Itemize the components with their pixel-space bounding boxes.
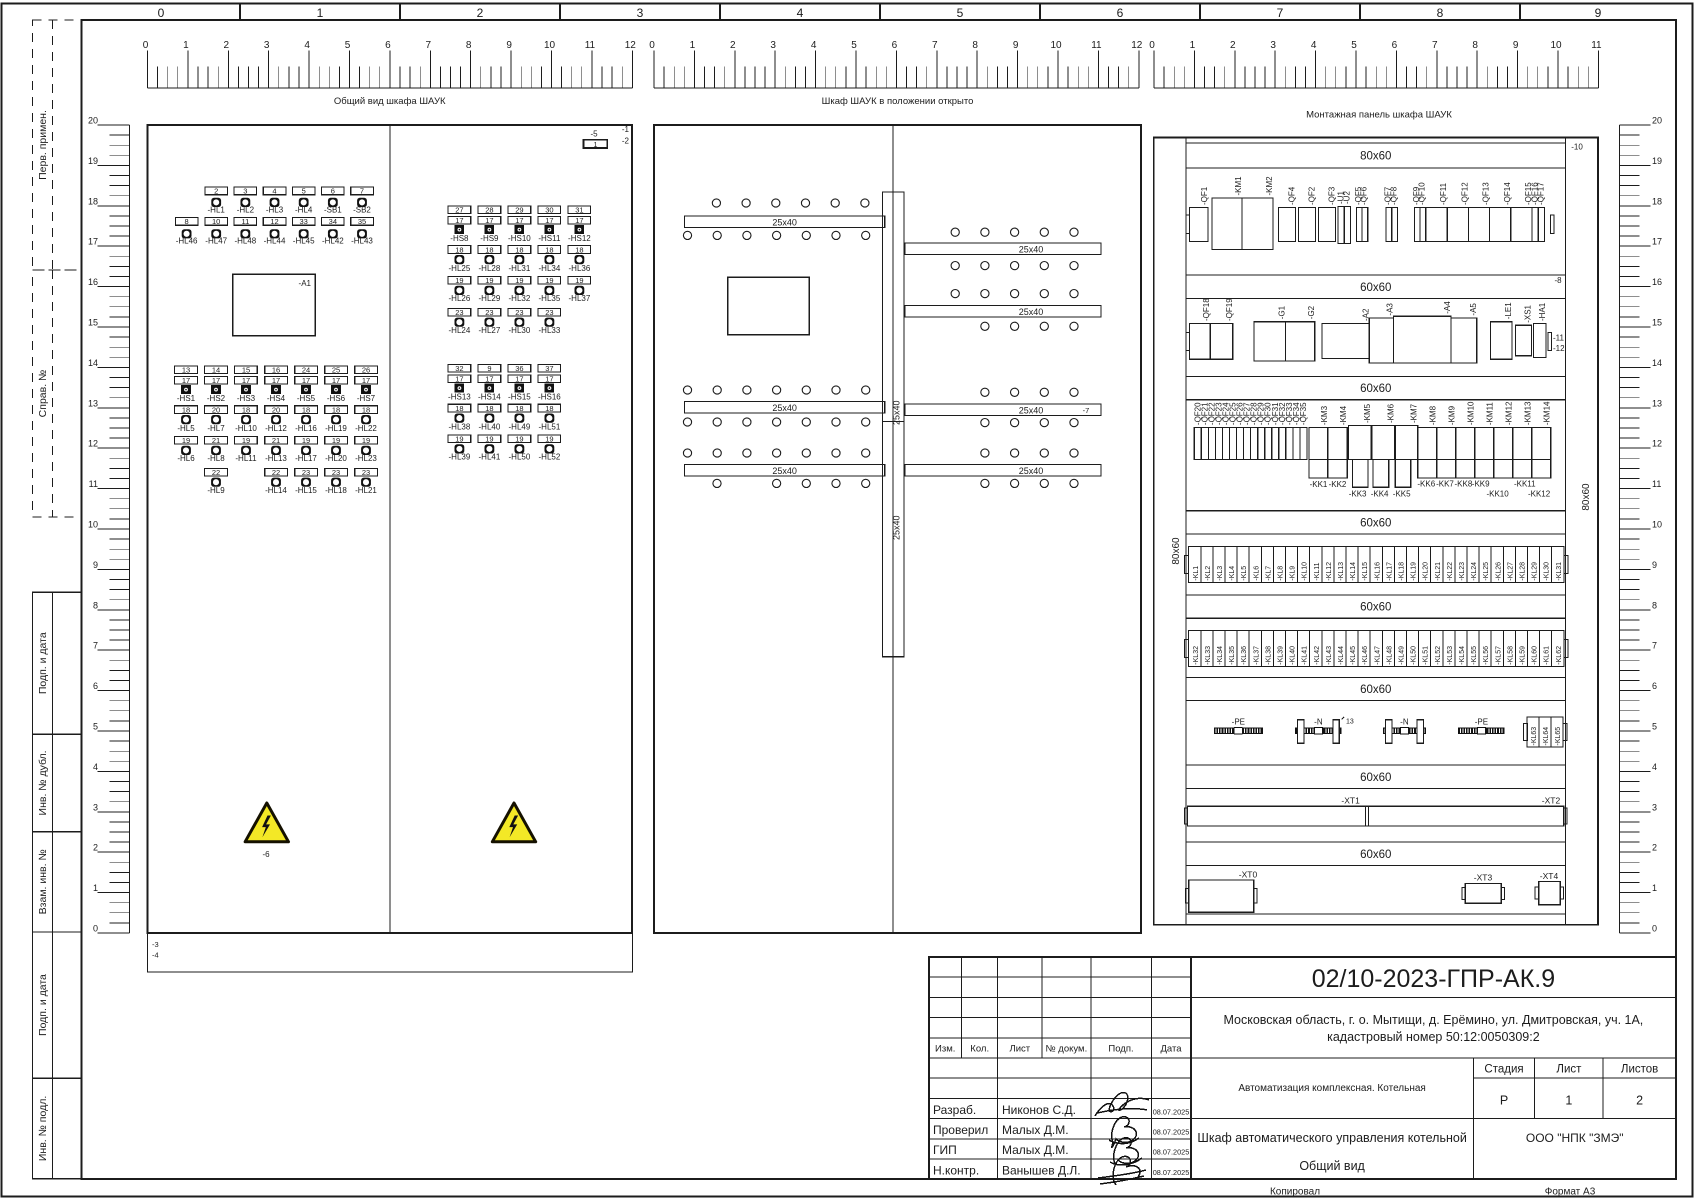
svg-text:1: 1 <box>1190 40 1196 51</box>
svg-text:-SB2: -SB2 <box>353 206 371 215</box>
svg-text:08.07.2025: 08.07.2025 <box>1153 1107 1190 1116</box>
svg-text:-KL30: -KL30 <box>1544 562 1551 581</box>
svg-text:-SB1: -SB1 <box>324 206 342 215</box>
svg-text:-HS16: -HS16 <box>538 393 561 402</box>
svg-text:7: 7 <box>93 641 98 651</box>
svg-text:-HL52: -HL52 <box>539 453 561 462</box>
svg-text:6: 6 <box>1117 6 1124 20</box>
svg-text:Копировал: Копировал <box>1270 1187 1320 1198</box>
svg-text:12: 12 <box>1131 40 1143 51</box>
svg-text:-KK1: -KK1 <box>1310 480 1328 489</box>
svg-text:14: 14 <box>212 366 220 375</box>
svg-text:15: 15 <box>242 366 250 375</box>
svg-text:-KK4: -KK4 <box>1371 490 1389 499</box>
svg-text:6: 6 <box>331 187 335 196</box>
svg-text:19: 19 <box>455 435 463 444</box>
svg-text:08.07.2025: 08.07.2025 <box>1153 1128 1190 1137</box>
svg-text:-KL4: -KL4 <box>1229 566 1236 581</box>
svg-text:-KL14: -KL14 <box>1350 562 1357 581</box>
svg-text:15: 15 <box>1652 318 1662 328</box>
svg-text:11: 11 <box>585 40 596 51</box>
svg-text:-KL25: -KL25 <box>1483 562 1490 581</box>
svg-text:19: 19 <box>302 436 310 445</box>
svg-text:13: 13 <box>182 366 190 375</box>
svg-text:-HS6: -HS6 <box>327 394 346 403</box>
svg-text:23: 23 <box>545 308 553 317</box>
svg-text:7: 7 <box>932 40 938 51</box>
svg-text:80х60: 80х60 <box>1581 483 1592 511</box>
svg-text:18: 18 <box>455 404 463 413</box>
svg-text:0: 0 <box>1149 40 1155 51</box>
svg-text:-HL10: -HL10 <box>235 424 257 433</box>
svg-text:-G1: -G1 <box>1277 305 1286 319</box>
svg-text:17: 17 <box>545 216 553 225</box>
svg-text:-KL43: -KL43 <box>1326 646 1333 665</box>
svg-text:№ докум.: № докум. <box>1045 1044 1087 1055</box>
svg-text:7: 7 <box>1432 40 1438 51</box>
svg-text:-HL21: -HL21 <box>355 486 377 495</box>
svg-text:-KM1: -KM1 <box>1234 176 1243 196</box>
svg-text:-HL49: -HL49 <box>509 423 531 432</box>
svg-text:19: 19 <box>515 276 523 285</box>
svg-text:Р: Р <box>1500 1094 1508 1108</box>
svg-text:0: 0 <box>1652 924 1657 934</box>
svg-text:5: 5 <box>93 722 98 732</box>
svg-text:-HS8: -HS8 <box>450 234 469 243</box>
svg-text:-QF17: -QF17 <box>1537 182 1546 205</box>
svg-text:Подп. и дата: Подп. и дата <box>37 974 49 1036</box>
svg-text:1: 1 <box>183 40 189 51</box>
svg-text:0: 0 <box>158 6 165 20</box>
svg-text:-HS15: -HS15 <box>508 393 531 402</box>
svg-text:-QF3: -QF3 <box>1328 186 1337 205</box>
svg-text:18: 18 <box>575 245 583 254</box>
svg-text:60х60: 60х60 <box>1360 383 1391 395</box>
svg-text:-KL40: -KL40 <box>1290 646 1297 665</box>
svg-text:80х60: 80х60 <box>1360 151 1391 163</box>
svg-text:18: 18 <box>485 404 493 413</box>
svg-text:10: 10 <box>88 520 98 530</box>
svg-text:18: 18 <box>515 404 523 413</box>
svg-text:-HS1: -HS1 <box>177 394 196 403</box>
svg-text:08.07.2025: 08.07.2025 <box>1153 1148 1190 1157</box>
svg-text:-G2: -G2 <box>1307 305 1316 319</box>
svg-text:9: 9 <box>506 40 512 51</box>
svg-text:-HL28: -HL28 <box>479 264 501 273</box>
svg-text:-QF10: -QF10 <box>1418 182 1427 205</box>
svg-text:9: 9 <box>1013 40 1019 51</box>
svg-text:Кол.: Кол. <box>970 1044 989 1055</box>
svg-text:-KL53: -KL53 <box>1447 646 1454 665</box>
svg-text:Инв. № подл.: Инв. № подл. <box>37 1096 49 1161</box>
svg-text:11: 11 <box>1652 479 1661 489</box>
svg-text:-KL42: -KL42 <box>1314 646 1321 665</box>
svg-text:19: 19 <box>242 436 250 445</box>
svg-text:-KK7: -KK7 <box>1436 480 1454 489</box>
svg-text:0: 0 <box>93 924 98 934</box>
svg-text:18: 18 <box>545 404 553 413</box>
svg-text:-KL19: -KL19 <box>1411 562 1418 581</box>
svg-text:2: 2 <box>214 187 218 196</box>
svg-text:25х40: 25х40 <box>772 218 797 228</box>
svg-text:19: 19 <box>88 156 98 166</box>
svg-text:-QF1: -QF1 <box>1200 186 1209 205</box>
svg-text:-KL3: -KL3 <box>1217 566 1224 581</box>
svg-text:3: 3 <box>637 6 644 20</box>
svg-text:Шкаф ШАУК в положении открыто: Шкаф ШАУК в положении открыто <box>822 96 974 107</box>
svg-text:17: 17 <box>455 375 463 384</box>
svg-text:-KL56: -KL56 <box>1483 646 1490 665</box>
svg-text:10: 10 <box>1652 520 1662 530</box>
svg-text:60х60: 60х60 <box>1360 602 1391 614</box>
svg-text:-KL10: -KL10 <box>1302 562 1309 581</box>
svg-text:-HS12: -HS12 <box>568 234 591 243</box>
svg-text:-KL51: -KL51 <box>1423 646 1430 665</box>
svg-text:-QF14: -QF14 <box>1503 182 1512 205</box>
svg-text:-HL27: -HL27 <box>479 326 501 335</box>
svg-text:4: 4 <box>1652 762 1657 772</box>
svg-text:Ванышев Д.Л.: Ванышев Д.Л. <box>1002 1163 1081 1177</box>
svg-text:-HL2: -HL2 <box>237 206 255 215</box>
svg-text:24: 24 <box>302 366 310 375</box>
svg-text:31: 31 <box>575 206 583 215</box>
svg-text:-KM13: -KM13 <box>1524 401 1533 425</box>
svg-text:-KL5: -KL5 <box>1241 566 1248 581</box>
svg-text:ООО "НПК "ЗМЭ": ООО "НПК "ЗМЭ" <box>1526 1131 1624 1145</box>
svg-text:25х40: 25х40 <box>892 515 902 540</box>
svg-text:25х40: 25х40 <box>772 403 797 413</box>
svg-text:19: 19 <box>545 276 553 285</box>
svg-text:3: 3 <box>770 40 776 51</box>
svg-text:-2: -2 <box>622 137 630 146</box>
svg-text:-KM6: -KM6 <box>1386 403 1395 423</box>
svg-text:25: 25 <box>332 366 340 375</box>
svg-text:12: 12 <box>625 40 637 51</box>
svg-text:-KL9: -KL9 <box>1290 566 1297 581</box>
svg-text:-HL17: -HL17 <box>295 454 317 463</box>
svg-text:Общий вид: Общий вид <box>1299 1159 1365 1173</box>
svg-text:17: 17 <box>302 376 310 385</box>
svg-text:-8: -8 <box>1554 276 1562 285</box>
svg-text:-KL49: -KL49 <box>1398 646 1405 665</box>
svg-text:9: 9 <box>93 560 98 570</box>
svg-text:-6: -6 <box>262 850 270 859</box>
svg-text:5: 5 <box>1351 40 1357 51</box>
svg-text:-HL34: -HL34 <box>539 264 561 273</box>
svg-text:-A1: -A1 <box>299 279 312 288</box>
svg-text:-KL33: -KL33 <box>1205 646 1212 665</box>
svg-text:-HL11: -HL11 <box>235 454 257 463</box>
svg-text:-KL29: -KL29 <box>1532 562 1539 581</box>
svg-text:-KL28: -KL28 <box>1519 562 1526 581</box>
svg-text:-KM14: -KM14 <box>1543 401 1552 425</box>
svg-text:кадастровый номер 50:12:005030: кадастровый номер 50:12:0050309:2 <box>1327 1030 1540 1044</box>
svg-text:60х60: 60х60 <box>1360 517 1391 529</box>
svg-text:-QF2: -QF2 <box>1308 186 1317 205</box>
svg-text:5: 5 <box>851 40 857 51</box>
svg-text:8: 8 <box>93 600 98 610</box>
svg-text:19: 19 <box>545 435 553 444</box>
svg-text:17: 17 <box>272 376 280 385</box>
svg-text:-KL47: -KL47 <box>1374 646 1381 665</box>
svg-text:20: 20 <box>88 116 98 126</box>
svg-text:-HL37: -HL37 <box>569 294 591 303</box>
svg-text:23: 23 <box>332 468 340 477</box>
svg-text:08.07.2025: 08.07.2025 <box>1153 1168 1190 1177</box>
svg-text:34: 34 <box>329 217 337 226</box>
svg-text:-HL13: -HL13 <box>265 454 287 463</box>
svg-text:7: 7 <box>1277 6 1284 20</box>
svg-text:-KK10: -KK10 <box>1486 490 1509 499</box>
svg-text:11: 11 <box>1591 40 1602 51</box>
svg-text:-HS13: -HS13 <box>448 393 471 402</box>
svg-text:Монтажная панель шкафа ШАУК: Монтажная панель шкафа ШАУК <box>1306 110 1452 121</box>
svg-text:-KL6: -KL6 <box>1253 566 1260 581</box>
svg-text:18: 18 <box>332 405 340 414</box>
svg-text:5: 5 <box>1652 722 1657 732</box>
svg-text:3: 3 <box>1652 802 1657 812</box>
svg-text:-HL12: -HL12 <box>265 424 287 433</box>
svg-text:14: 14 <box>88 358 98 368</box>
svg-text:1: 1 <box>93 883 98 893</box>
svg-text:19: 19 <box>362 436 370 445</box>
svg-text:-QF12: -QF12 <box>1460 182 1469 205</box>
svg-text:17: 17 <box>88 237 98 247</box>
svg-text:18: 18 <box>302 405 310 414</box>
svg-text:Подп. и дата: Подп. и дата <box>37 632 49 694</box>
svg-text:60х60: 60х60 <box>1360 772 1391 784</box>
svg-text:30: 30 <box>545 206 553 215</box>
svg-text:6: 6 <box>892 40 898 51</box>
svg-text:-HS10: -HS10 <box>508 234 531 243</box>
svg-text:-HL8: -HL8 <box>207 454 225 463</box>
svg-text:-HL38: -HL38 <box>449 423 471 432</box>
svg-text:-LE1: -LE1 <box>1504 302 1513 319</box>
svg-text:9: 9 <box>487 364 491 373</box>
svg-text:23: 23 <box>362 468 370 477</box>
svg-text:2: 2 <box>477 6 484 20</box>
svg-text:-HL16: -HL16 <box>295 424 317 433</box>
svg-text:12: 12 <box>88 439 98 449</box>
svg-text:11: 11 <box>89 479 98 489</box>
svg-text:6: 6 <box>385 40 391 51</box>
svg-text:7: 7 <box>426 40 432 51</box>
svg-text:-HL30: -HL30 <box>509 326 531 335</box>
svg-text:20: 20 <box>272 405 280 414</box>
svg-text:17: 17 <box>212 376 220 385</box>
svg-text:-KM8: -KM8 <box>1429 405 1438 425</box>
svg-text:4: 4 <box>304 40 310 51</box>
svg-text:4: 4 <box>1311 40 1317 51</box>
svg-text:-KK9: -KK9 <box>1472 480 1490 489</box>
svg-text:-KL52: -KL52 <box>1435 646 1442 665</box>
svg-text:-KM9: -KM9 <box>1448 405 1457 425</box>
svg-text:10: 10 <box>544 40 556 51</box>
svg-text:33: 33 <box>300 217 308 226</box>
svg-text:-HL51: -HL51 <box>539 423 561 432</box>
svg-text:-HL24: -HL24 <box>449 326 471 335</box>
svg-text:-QF6: -QF6 <box>1360 186 1369 205</box>
svg-text:-KK8: -KK8 <box>1455 480 1473 489</box>
svg-text:36: 36 <box>515 364 523 373</box>
svg-text:-4: -4 <box>152 951 159 960</box>
svg-text:Дата: Дата <box>1160 1044 1182 1055</box>
svg-text:16: 16 <box>88 277 98 287</box>
svg-text:-HL48: -HL48 <box>234 237 256 246</box>
svg-text:29: 29 <box>515 206 523 215</box>
svg-text:17: 17 <box>545 375 553 384</box>
svg-text:-HL29: -HL29 <box>479 294 501 303</box>
svg-text:25х40: 25х40 <box>1019 245 1044 255</box>
svg-text:-XT1: -XT1 <box>1341 796 1360 806</box>
svg-text:-KL62: -KL62 <box>1556 646 1563 665</box>
svg-text:-10: -10 <box>1571 143 1583 152</box>
svg-text:60х60: 60х60 <box>1360 684 1391 696</box>
svg-text:-KL1: -KL1 <box>1193 566 1200 581</box>
svg-text:8: 8 <box>1437 6 1444 20</box>
svg-text:-KK5: -KK5 <box>1393 490 1411 499</box>
svg-text:-KK11: -KK11 <box>1514 480 1536 489</box>
svg-text:7: 7 <box>1652 641 1657 651</box>
svg-text:-HS7: -HS7 <box>357 394 376 403</box>
svg-text:17: 17 <box>182 376 190 385</box>
svg-text:-HL42: -HL42 <box>322 237 344 246</box>
svg-text:Изм.: Изм. <box>935 1044 955 1055</box>
svg-text:3: 3 <box>1270 40 1276 51</box>
svg-text:-HL14: -HL14 <box>265 486 287 495</box>
svg-text:9: 9 <box>1513 40 1519 51</box>
svg-text:4: 4 <box>272 187 276 196</box>
svg-text:-KM5: -KM5 <box>1363 403 1372 423</box>
svg-text:25х40: 25х40 <box>1019 307 1044 317</box>
svg-text:Разраб.: Разраб. <box>933 1103 976 1117</box>
svg-text:8: 8 <box>185 217 189 226</box>
svg-text:14: 14 <box>1652 358 1662 368</box>
svg-text:-KK12: -KK12 <box>1528 490 1551 499</box>
svg-text:18: 18 <box>485 245 493 254</box>
svg-text:-HL31: -HL31 <box>509 264 531 273</box>
svg-text:-KL24: -KL24 <box>1471 562 1478 581</box>
svg-text:7: 7 <box>360 187 364 196</box>
svg-text:-1: -1 <box>622 125 630 134</box>
svg-text:-HL20: -HL20 <box>325 454 347 463</box>
svg-text:-HL46: -HL46 <box>176 237 198 246</box>
svg-text:8: 8 <box>972 40 978 51</box>
svg-text:23: 23 <box>515 308 523 317</box>
svg-text:17: 17 <box>485 216 493 225</box>
svg-text:-KM10: -KM10 <box>1467 401 1476 425</box>
svg-text:21: 21 <box>272 436 280 445</box>
svg-text:-HL26: -HL26 <box>449 294 471 303</box>
svg-text:-KM3: -KM3 <box>1320 405 1329 425</box>
svg-text:17: 17 <box>362 376 370 385</box>
svg-text:Общий вид шкафа ШАУК: Общий вид шкафа ШАУК <box>334 96 446 107</box>
svg-text:-HL9: -HL9 <box>207 486 225 495</box>
svg-text:15: 15 <box>88 318 98 328</box>
svg-text:28: 28 <box>485 206 493 215</box>
svg-text:-KL7: -KL7 <box>1265 566 1272 581</box>
svg-text:-KL15: -KL15 <box>1362 562 1369 581</box>
svg-text:18: 18 <box>242 405 250 414</box>
svg-text:10: 10 <box>1050 40 1062 51</box>
svg-text:23: 23 <box>485 308 493 317</box>
svg-text:Автоматизация комплексная. Кот: Автоматизация комплексная. Котельная <box>1238 1083 1426 1094</box>
svg-text:13: 13 <box>1346 719 1354 726</box>
svg-text:19: 19 <box>332 436 340 445</box>
svg-text:3: 3 <box>93 802 98 812</box>
svg-text:-11: -11 <box>1553 334 1565 343</box>
svg-text:-HL3: -HL3 <box>266 206 284 215</box>
svg-text:10: 10 <box>212 217 220 226</box>
svg-text:-5: -5 <box>590 130 598 139</box>
svg-text:-HL23: -HL23 <box>355 454 377 463</box>
svg-text:-HL36: -HL36 <box>569 264 591 273</box>
svg-text:-QF19: -QF19 <box>1225 298 1234 321</box>
svg-text:-KL35: -KL35 <box>1229 646 1236 665</box>
svg-text:-KL63: -KL63 <box>1531 727 1538 746</box>
svg-text:18: 18 <box>515 245 523 254</box>
svg-text:Стадия: Стадия <box>1484 1064 1523 1076</box>
svg-text:23: 23 <box>302 468 310 477</box>
svg-text:-HL15: -HL15 <box>295 486 317 495</box>
svg-text:-KL39: -KL39 <box>1277 646 1284 665</box>
svg-text:-KL58: -KL58 <box>1507 646 1514 665</box>
svg-text:-KL48: -KL48 <box>1386 646 1393 665</box>
svg-text:-HS2: -HS2 <box>207 394 226 403</box>
svg-text:Лист: Лист <box>1009 1044 1030 1055</box>
svg-text:26: 26 <box>362 366 370 375</box>
svg-text:1: 1 <box>594 142 598 149</box>
svg-text:Формат А3: Формат А3 <box>1545 1187 1596 1198</box>
svg-text:22: 22 <box>212 468 220 477</box>
svg-text:-KM12: -KM12 <box>1505 401 1514 425</box>
svg-text:18: 18 <box>1652 196 1662 206</box>
svg-text:6: 6 <box>1392 40 1398 51</box>
svg-text:25х40: 25х40 <box>892 400 902 425</box>
svg-text:-KM11: -KM11 <box>1486 402 1495 426</box>
svg-text:-HL22: -HL22 <box>355 424 377 433</box>
svg-text:-KL36: -KL36 <box>1241 646 1248 665</box>
svg-text:10: 10 <box>1550 40 1562 51</box>
svg-text:35: 35 <box>358 217 366 226</box>
svg-text:-KK2: -KK2 <box>1329 480 1347 489</box>
svg-text:0: 0 <box>649 40 655 51</box>
svg-text:-KL26: -KL26 <box>1495 562 1502 581</box>
svg-text:2: 2 <box>93 843 98 853</box>
svg-text:-KL22: -KL22 <box>1447 562 1454 581</box>
svg-text:-HL50: -HL50 <box>509 453 531 462</box>
svg-text:Лист: Лист <box>1556 1064 1582 1076</box>
svg-text:Малых Д.М.: Малых Д.М. <box>1002 1123 1069 1137</box>
svg-text:12: 12 <box>1652 439 1662 449</box>
svg-text:-KK3: -KK3 <box>1349 490 1367 499</box>
svg-text:18: 18 <box>455 245 463 254</box>
svg-text:-XT2: -XT2 <box>1542 796 1561 806</box>
svg-text:60х60: 60х60 <box>1360 282 1391 294</box>
svg-text:19: 19 <box>455 276 463 285</box>
svg-text:-HL7: -HL7 <box>207 424 225 433</box>
svg-text:19: 19 <box>182 436 190 445</box>
svg-text:-HS14: -HS14 <box>478 393 501 402</box>
svg-text:-HL39: -HL39 <box>449 453 471 462</box>
svg-text:4: 4 <box>797 6 804 20</box>
svg-text:Проверил: Проверил <box>933 1123 988 1137</box>
svg-text:-KL44: -KL44 <box>1338 646 1345 665</box>
svg-text:-KL16: -KL16 <box>1374 562 1381 581</box>
svg-text:6: 6 <box>1652 681 1657 691</box>
svg-text:-12: -12 <box>1553 344 1565 353</box>
svg-text:32: 32 <box>455 364 463 373</box>
